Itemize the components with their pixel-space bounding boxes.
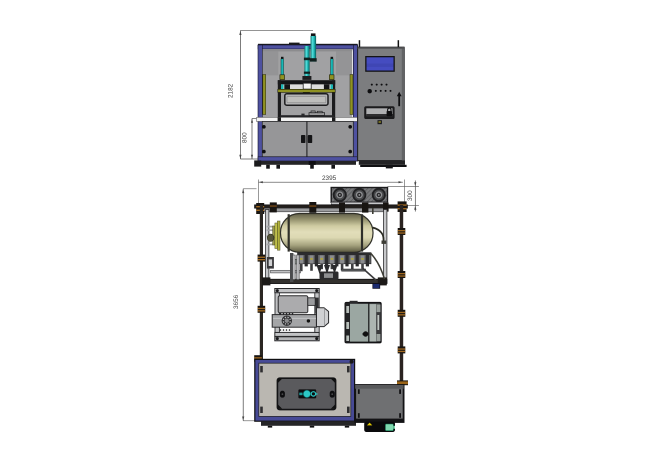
svg-text:300: 300 <box>407 190 414 201</box>
svg-text:800: 800 <box>242 132 249 143</box>
svg-text:2182: 2182 <box>227 83 234 98</box>
svg-text:3656: 3656 <box>233 294 240 309</box>
svg-text:2395: 2395 <box>322 175 337 182</box>
